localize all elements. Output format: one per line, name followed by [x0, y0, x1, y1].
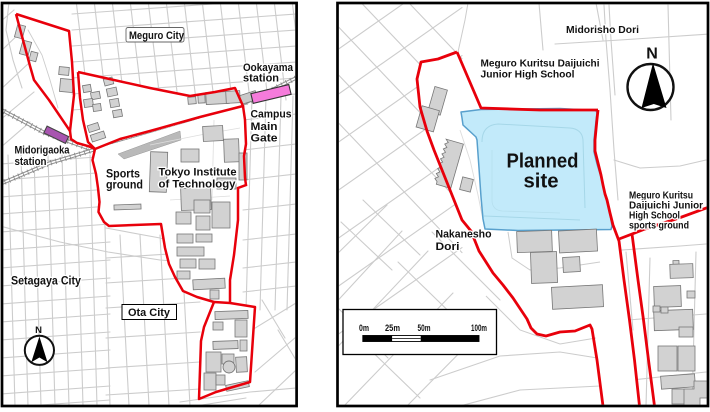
- svg-text:50m: 50m: [418, 323, 431, 334]
- svg-text:Nakanesho: Nakanesho: [436, 229, 492, 241]
- svg-text:of Technology: of Technology: [159, 179, 237, 191]
- svg-text:Campus: Campus: [251, 109, 292, 121]
- svg-text:Midorigaoka: Midorigaoka: [15, 145, 71, 157]
- svg-text:Meguro City: Meguro City: [129, 30, 185, 42]
- svg-text:station: station: [15, 156, 47, 168]
- svg-text:site: site: [524, 170, 559, 193]
- svg-text:N: N: [35, 325, 42, 336]
- svg-text:Midorisho Dori: Midorisho Dori: [566, 24, 639, 36]
- svg-text:Gate: Gate: [251, 133, 278, 145]
- svg-text:Tokyo Institute: Tokyo Institute: [159, 167, 237, 179]
- svg-text:Dori: Dori: [436, 241, 460, 253]
- svg-text:100m: 100m: [471, 323, 487, 334]
- svg-text:0m: 0m: [359, 323, 369, 334]
- svg-text:Setagaya City: Setagaya City: [11, 276, 82, 288]
- svg-text:station: station: [243, 73, 279, 85]
- svg-text:Ota City: Ota City: [128, 307, 171, 319]
- svg-text:25m: 25m: [385, 323, 400, 334]
- svg-text:ground: ground: [106, 180, 143, 192]
- svg-text:sports ground: sports ground: [629, 221, 689, 232]
- svg-text:Main: Main: [251, 121, 278, 133]
- svg-text:Junior High School: Junior High School: [481, 69, 575, 81]
- svg-text:N: N: [646, 46, 658, 63]
